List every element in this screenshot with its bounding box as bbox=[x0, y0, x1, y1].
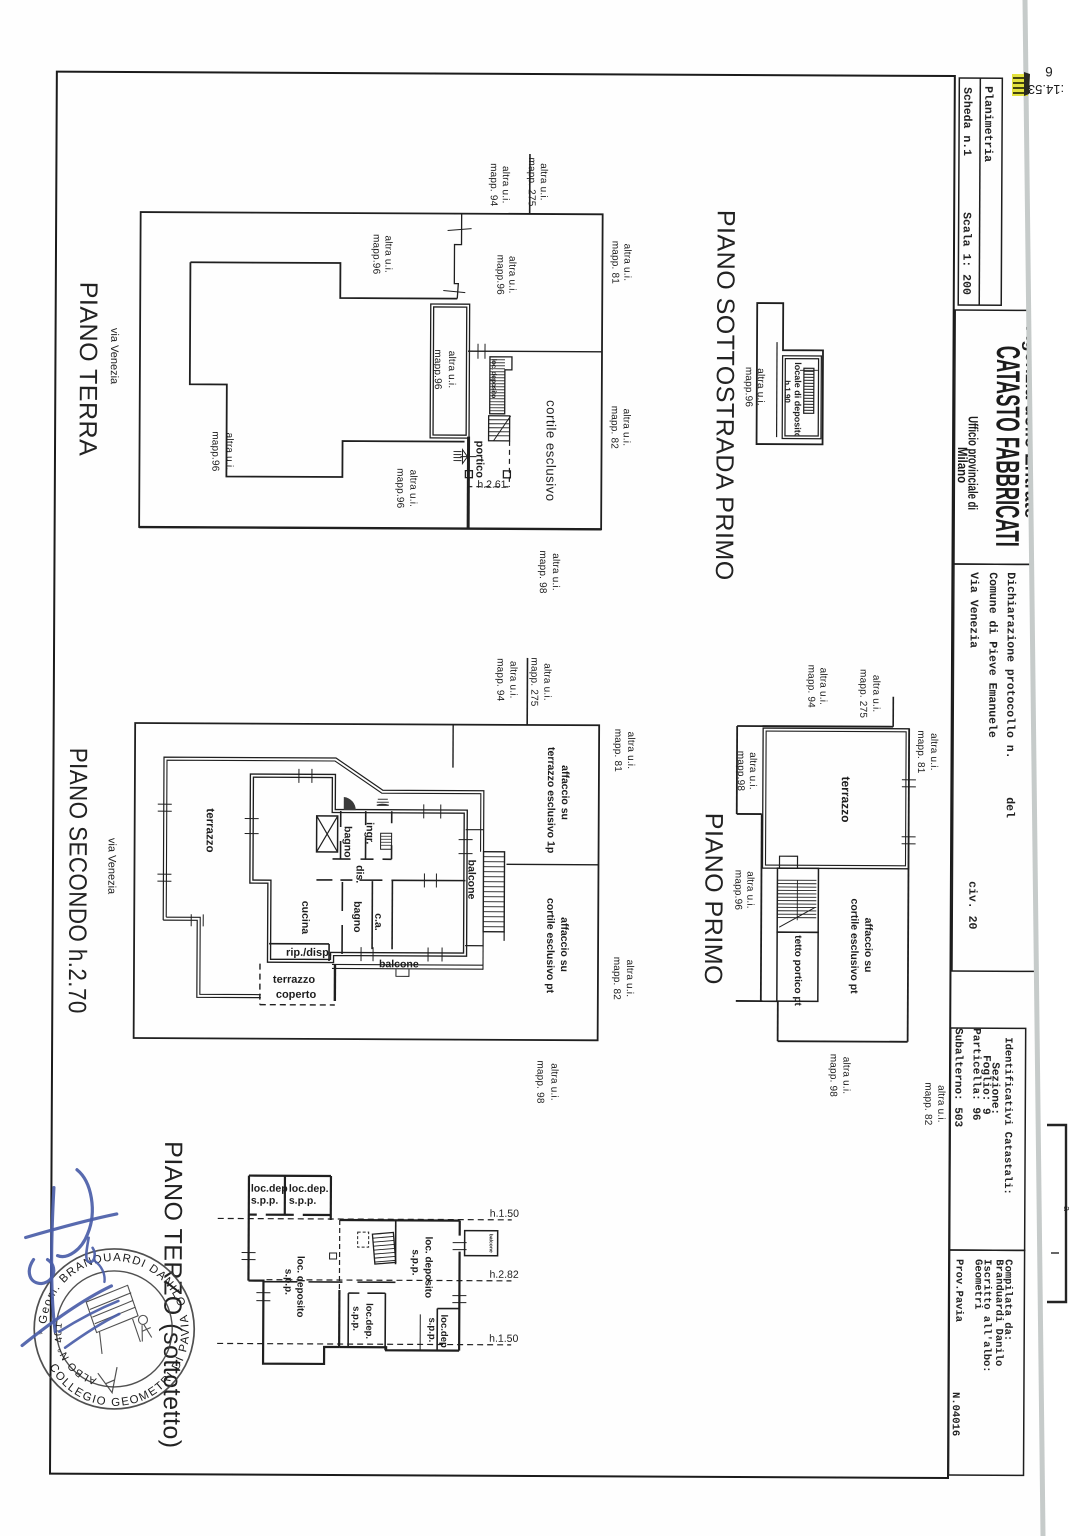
svg-text:Branduardi Danilo: Branduardi Danilo bbox=[992, 1259, 1005, 1366]
svg-text:tetto portico pt: tetto portico pt bbox=[792, 935, 803, 1006]
svg-text:mapp.96: mapp.96 bbox=[394, 468, 405, 509]
svg-text:loc.dep.: loc.dep. bbox=[363, 1303, 374, 1339]
svg-text:cortile esclusivo pt: cortile esclusivo pt bbox=[544, 898, 556, 994]
svg-text:mapp. 275: mapp. 275 bbox=[526, 157, 537, 206]
svg-text:Scheda n.1: Scheda n.1 bbox=[960, 87, 973, 156]
svg-text:6: 6 bbox=[1045, 64, 1053, 79]
svg-text:loc. deposito: loc. deposito bbox=[490, 359, 497, 398]
svg-text:mapp. 98: mapp. 98 bbox=[827, 1054, 838, 1098]
svg-text:locale di deposito: locale di deposito bbox=[793, 362, 803, 439]
svg-text:del: del bbox=[1003, 797, 1016, 818]
svg-text:s.p.p.: s.p.p. bbox=[289, 1195, 317, 1207]
svg-text:altra u.i.: altra u.i. bbox=[870, 675, 881, 713]
svg-text:Dichiarazione protocollo n.: Dichiarazione protocollo n. bbox=[1003, 572, 1017, 758]
svg-text:a: a bbox=[1062, 1206, 1072, 1211]
svg-text:mapp. 275: mapp. 275 bbox=[857, 669, 868, 718]
svg-text:altra u.i.: altra u.i. bbox=[744, 871, 755, 909]
svg-text:loc. deposito: loc. deposito bbox=[294, 1256, 305, 1318]
svg-text:loc.dep: loc.dep bbox=[251, 1183, 288, 1195]
svg-text:Prov.Pavia: Prov.Pavia bbox=[952, 1259, 964, 1323]
svg-text:affaccio su: affaccio su bbox=[862, 918, 874, 973]
svg-text:mapp. 275: mapp. 275 bbox=[528, 657, 539, 706]
svg-text:portico: portico bbox=[473, 441, 485, 479]
svg-text:mapp. 82: mapp. 82 bbox=[922, 1082, 933, 1126]
svg-text:Scala 1: 200: Scala 1: 200 bbox=[959, 212, 972, 295]
svg-text:mapp.96: mapp.96 bbox=[370, 234, 381, 275]
svg-text:altra u.i.: altra u.i. bbox=[928, 733, 939, 771]
svg-text:altra u.i.: altra u.i. bbox=[500, 166, 511, 204]
svg-text:terrazzo: terrazzo bbox=[204, 808, 216, 852]
svg-text:bagno: bagno bbox=[342, 826, 354, 858]
svg-text:h.1.50: h.1.50 bbox=[489, 1333, 518, 1345]
svg-text:CATASTO FABBRICATI: CATASTO FABBRICATI bbox=[989, 346, 1027, 547]
svg-text:c.a.: c.a. bbox=[372, 913, 384, 931]
svg-text:PIANO TERRA: PIANO TERRA bbox=[73, 282, 102, 457]
svg-text:altra u.i.: altra u.i. bbox=[223, 433, 234, 471]
svg-text:balcone: balcone bbox=[379, 958, 419, 970]
svg-text:h.1.50: h.1.50 bbox=[490, 1208, 519, 1220]
svg-text:altra u.i.: altra u.i. bbox=[747, 752, 758, 790]
svg-text:mapp. 82: mapp. 82 bbox=[609, 406, 620, 450]
svg-text:s.p.p.: s.p.p. bbox=[426, 1317, 437, 1342]
svg-text:via Venezia: via Venezia bbox=[105, 838, 117, 895]
svg-text:loc. deposito: loc. deposito bbox=[422, 1236, 433, 1298]
svg-text:Comune di Pieve Emanuele: Comune di Pieve Emanuele bbox=[985, 572, 999, 738]
svg-text:Identificativi Catastali:: Identificativi Catastali: bbox=[1001, 1037, 1014, 1195]
svg-text:mapp. 81: mapp. 81 bbox=[612, 729, 623, 773]
svg-text:altra u.i.: altra u.i. bbox=[407, 470, 418, 508]
svg-text:mapp. 94: mapp. 94 bbox=[494, 658, 505, 702]
svg-text:mapp. 94: mapp. 94 bbox=[805, 665, 816, 709]
svg-text:s.p.p.: s.p.p. bbox=[251, 1195, 279, 1207]
svg-text:terrazzo: terrazzo bbox=[839, 776, 853, 822]
svg-text:altra u.i.: altra u.i. bbox=[817, 668, 828, 706]
svg-text:altra u.i.: altra u.i. bbox=[506, 256, 517, 294]
svg-text:affaccio su: affaccio su bbox=[558, 917, 570, 972]
svg-text:altra u.i.: altra u.i. bbox=[538, 163, 549, 201]
svg-text:Particella: 96: Particella: 96 bbox=[969, 1028, 981, 1120]
svg-text:mapp. 94: mapp. 94 bbox=[488, 163, 499, 207]
svg-text:altra u.i.: altra u.i. bbox=[446, 351, 457, 389]
svg-text:mapp.96: mapp.96 bbox=[743, 367, 754, 408]
svg-text:balcone: balcone bbox=[488, 1234, 494, 1253]
svg-text:N.04016: N.04016 bbox=[949, 1392, 961, 1436]
svg-text:altra u.i.: altra u.i. bbox=[840, 1057, 851, 1095]
svg-text:PIANO SECONDO h.2.70: PIANO SECONDO h.2.70 bbox=[63, 748, 92, 1014]
svg-text:affaccio su: affaccio su bbox=[559, 765, 571, 820]
svg-text:altra u.i.: altra u.i. bbox=[548, 1063, 559, 1101]
svg-text:Milano: Milano bbox=[955, 447, 970, 483]
svg-text:mapp. 98: mapp. 98 bbox=[534, 1060, 545, 1104]
svg-text::14.53: :14.53 bbox=[1028, 82, 1064, 97]
svg-text:mapp.96: mapp.96 bbox=[494, 255, 505, 296]
svg-text:cortile esclusivo: cortile esclusivo bbox=[543, 400, 558, 502]
svg-text:cortile esclusivo pt: cortile esclusivo pt bbox=[848, 899, 860, 995]
svg-text:Via Venezia: Via Venezia bbox=[967, 572, 980, 648]
svg-text:altra u.i.: altra u.i. bbox=[382, 235, 393, 273]
svg-text:altra u.i.: altra u.i. bbox=[621, 409, 632, 447]
svg-text:mapp. 81: mapp. 81 bbox=[609, 241, 620, 285]
svg-text:s.p.p.: s.p.p. bbox=[350, 1306, 361, 1331]
svg-text:PIANO PRIMO: PIANO PRIMO bbox=[699, 813, 728, 985]
svg-text:rip./disp.: rip./disp. bbox=[286, 947, 332, 959]
svg-text:mapp. 98: mapp. 98 bbox=[537, 550, 548, 594]
svg-text:civ. 20: civ. 20 bbox=[965, 881, 978, 929]
svg-text:loc.dep.: loc.dep. bbox=[289, 1183, 329, 1195]
svg-text:Subalterno: 503: Subalterno: 503 bbox=[951, 1028, 963, 1127]
svg-text:Planimetria: Planimetria bbox=[981, 86, 994, 162]
svg-text:coperto: coperto bbox=[276, 989, 317, 1001]
svg-text:mapp. 81: mapp. 81 bbox=[915, 730, 926, 774]
svg-text:loc.dep: loc.dep bbox=[438, 1315, 449, 1349]
svg-text:altra u.i.: altra u.i. bbox=[935, 1085, 946, 1123]
svg-text:altra u.i.: altra u.i. bbox=[541, 663, 552, 701]
svg-text:mapp.96: mapp.96 bbox=[732, 870, 743, 911]
svg-text:altra u.i.: altra u.i. bbox=[550, 553, 561, 591]
svg-text:mapp. 82: mapp. 82 bbox=[611, 957, 622, 1001]
svg-text:PIANO SOTTOSTRADA PRIMO: PIANO SOTTOSTRADA PRIMO bbox=[710, 210, 740, 581]
svg-text:h.2.61: h.2.61 bbox=[477, 479, 506, 491]
svg-text:terrazzo: terrazzo bbox=[273, 974, 316, 986]
svg-text:altra u.i.: altra u.i. bbox=[507, 661, 518, 699]
svg-text:bagno: bagno bbox=[351, 901, 363, 933]
svg-text:via Venezia: via Venezia bbox=[108, 328, 120, 385]
svg-text:Geometri: Geometri bbox=[971, 1259, 983, 1309]
svg-text:mapp.96: mapp.96 bbox=[209, 431, 220, 472]
svg-text:s.p.p.: s.p.p. bbox=[409, 1249, 420, 1275]
svg-text:altra u.i.: altra u.i. bbox=[625, 732, 636, 770]
svg-text:h.2.82: h.2.82 bbox=[489, 1269, 518, 1281]
svg-text:terrazzo esclusivo 1p: terrazzo esclusivo 1p bbox=[545, 747, 558, 853]
svg-text:cucina: cucina bbox=[299, 901, 311, 934]
svg-text:altra u.i.: altra u.i. bbox=[621, 244, 632, 282]
svg-text:altra u.i.: altra u.i. bbox=[624, 960, 635, 998]
